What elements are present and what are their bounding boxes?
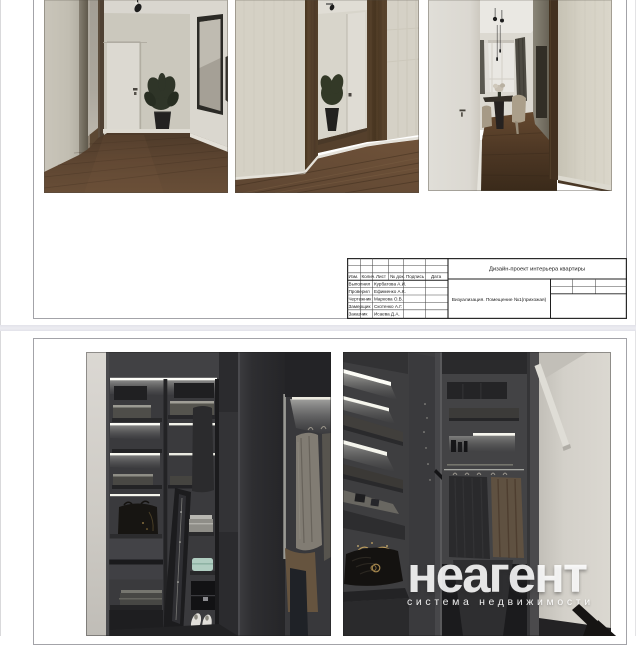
svg-text:Колич.: Колич. (362, 274, 376, 279)
svg-text:Проверил: Проверил (349, 289, 370, 294)
svg-text:Чертежник: Чертежник (349, 297, 373, 302)
svg-text:Дизайн-проект интерьера кварти: Дизайн-проект интерьера квартиры (489, 266, 585, 273)
svg-text:Скотенко А.Г.: Скотенко А.Г. (374, 304, 402, 309)
svg-text:Дата: Дата (431, 274, 442, 279)
svg-text:Изм.: Изм. (349, 274, 359, 279)
svg-text:Замерщик: Замерщик (349, 304, 372, 309)
svg-text:Визуализация. Помещение №1(при: Визуализация. Помещение №1(прихожая) (452, 297, 547, 303)
svg-text:Курбатова А.И.: Курбатова А.И. (374, 282, 406, 287)
svg-text:Лист: Лист (376, 274, 387, 279)
svg-text:Ефименко А.К.: Ефименко А.К. (374, 289, 406, 294)
svg-text:Заказчик: Заказчик (349, 311, 369, 316)
svg-text:№ док.: № док. (390, 274, 405, 279)
svg-text:Маркова О.В.: Маркова О.В. (374, 297, 403, 302)
svg-text:Подпись: Подпись (406, 274, 425, 279)
svg-text:Выполнил: Выполнил (349, 282, 371, 287)
svg-text:Исаева Д.А.: Исаева Д.А. (374, 311, 400, 316)
